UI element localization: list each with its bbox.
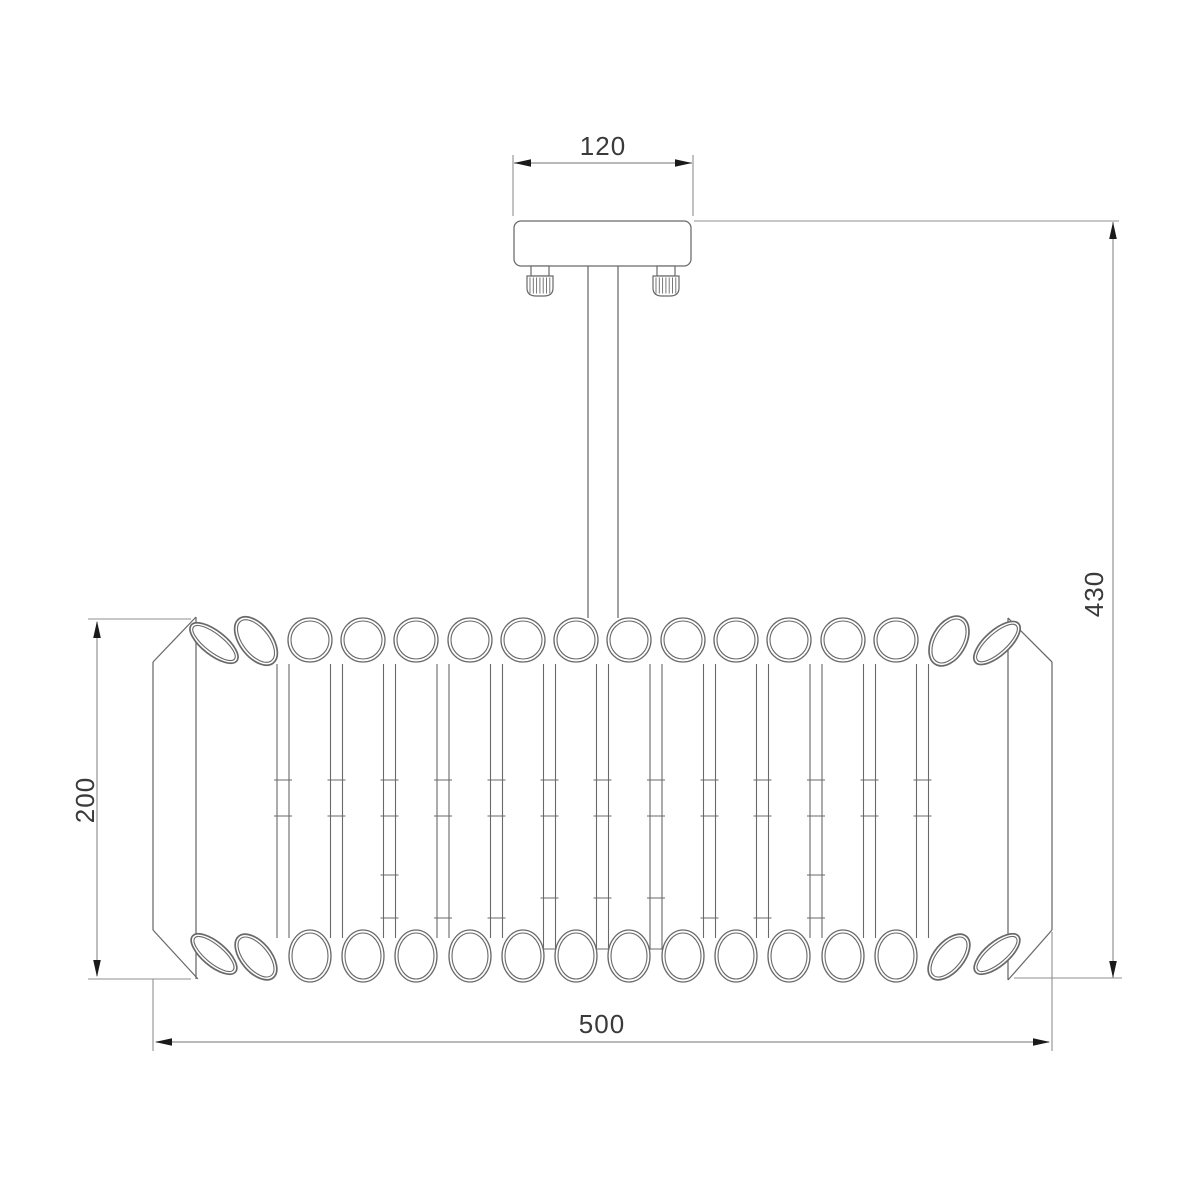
tube-10-top-rim-outer bbox=[661, 618, 705, 662]
tube-8-top-rim-outer bbox=[554, 618, 598, 662]
tube-7-top-rim-outer bbox=[501, 618, 545, 662]
tube-16-top-rim-outer bbox=[967, 614, 1027, 671]
mounting-knobs bbox=[527, 266, 679, 296]
tube-11-top-rim-outer bbox=[714, 618, 758, 662]
dimension-shade-diameter: 500 bbox=[153, 932, 1052, 1051]
knob-neck bbox=[657, 266, 675, 276]
dimension-label-200: 200 bbox=[70, 777, 100, 823]
tube-12-top-rim-outer bbox=[767, 618, 811, 662]
tube-9-top-rim-outer bbox=[607, 618, 651, 662]
arrowhead-up bbox=[1109, 222, 1117, 239]
arrowhead-up bbox=[93, 621, 101, 638]
tube-3-top-rim-outer bbox=[288, 618, 332, 662]
tube-bottom-rims bbox=[185, 927, 1026, 988]
tube-8-bottom-rim-outer bbox=[555, 930, 597, 982]
technical-drawing: 120 430 200 500 bbox=[0, 0, 1200, 1200]
tube-9-bottom-rim-outer bbox=[608, 930, 650, 982]
tube-top-rims bbox=[184, 609, 1027, 673]
tube-6-bottom-rim-outer bbox=[449, 930, 491, 982]
end-panels bbox=[153, 617, 1052, 980]
dimension-overall-height: 430 bbox=[694, 221, 1122, 978]
stem bbox=[588, 266, 618, 618]
arrowhead-down bbox=[1109, 961, 1117, 978]
tube-11-bottom-rim-outer bbox=[715, 930, 757, 982]
arrowhead-right bbox=[1033, 1038, 1050, 1046]
tube-5-bottom-rim-outer bbox=[395, 930, 437, 982]
tube-3-bottom-rim-outer bbox=[289, 930, 331, 982]
junction-strips bbox=[274, 664, 932, 950]
knob-neck bbox=[531, 266, 549, 276]
dimension-label-430: 430 bbox=[1079, 571, 1109, 617]
arrowhead-down bbox=[93, 960, 101, 977]
tube-2-top-rim-outer bbox=[226, 609, 286, 673]
knob-1 bbox=[527, 266, 553, 296]
tube-6-top-rim-outer bbox=[448, 618, 492, 662]
drawing-page: 120 430 200 500 bbox=[0, 0, 1200, 1200]
tube-14-bottom-rim-outer bbox=[875, 930, 917, 982]
tube-4-top-rim-outer bbox=[341, 618, 385, 662]
tube-2-bottom-rim-outer bbox=[227, 927, 285, 988]
dimension-label-500: 500 bbox=[579, 1009, 625, 1039]
tube-13-bottom-rim-outer bbox=[822, 930, 864, 982]
dimension-label-120: 120 bbox=[580, 131, 626, 161]
left-panel-top-bevel bbox=[153, 617, 196, 662]
arrowhead-left bbox=[155, 1038, 172, 1046]
tube-13-top-rim-outer bbox=[821, 618, 865, 662]
tube-1-bottom-rim-outer bbox=[185, 927, 243, 981]
knob-2 bbox=[653, 266, 679, 296]
tube-16-bottom-rim-outer bbox=[968, 927, 1026, 981]
tube-14-top-rim-outer bbox=[874, 618, 918, 662]
tube-10-bottom-rim-outer bbox=[662, 930, 704, 982]
dimension-canopy-width: 120 bbox=[513, 131, 693, 216]
canopy-plate bbox=[514, 221, 691, 266]
tube-5-top-rim-outer bbox=[394, 618, 438, 662]
tube-4-bottom-rim-outer bbox=[342, 930, 384, 982]
arrowhead-right bbox=[675, 159, 692, 167]
tube-15-top-rim-outer bbox=[921, 609, 977, 673]
tube-7-bottom-rim-outer bbox=[502, 930, 544, 982]
dimension-shade-height: 200 bbox=[70, 619, 191, 979]
crystal-shade bbox=[153, 266, 1052, 987]
arrowhead-left bbox=[514, 159, 531, 167]
tube-12-bottom-rim-outer bbox=[768, 930, 810, 982]
